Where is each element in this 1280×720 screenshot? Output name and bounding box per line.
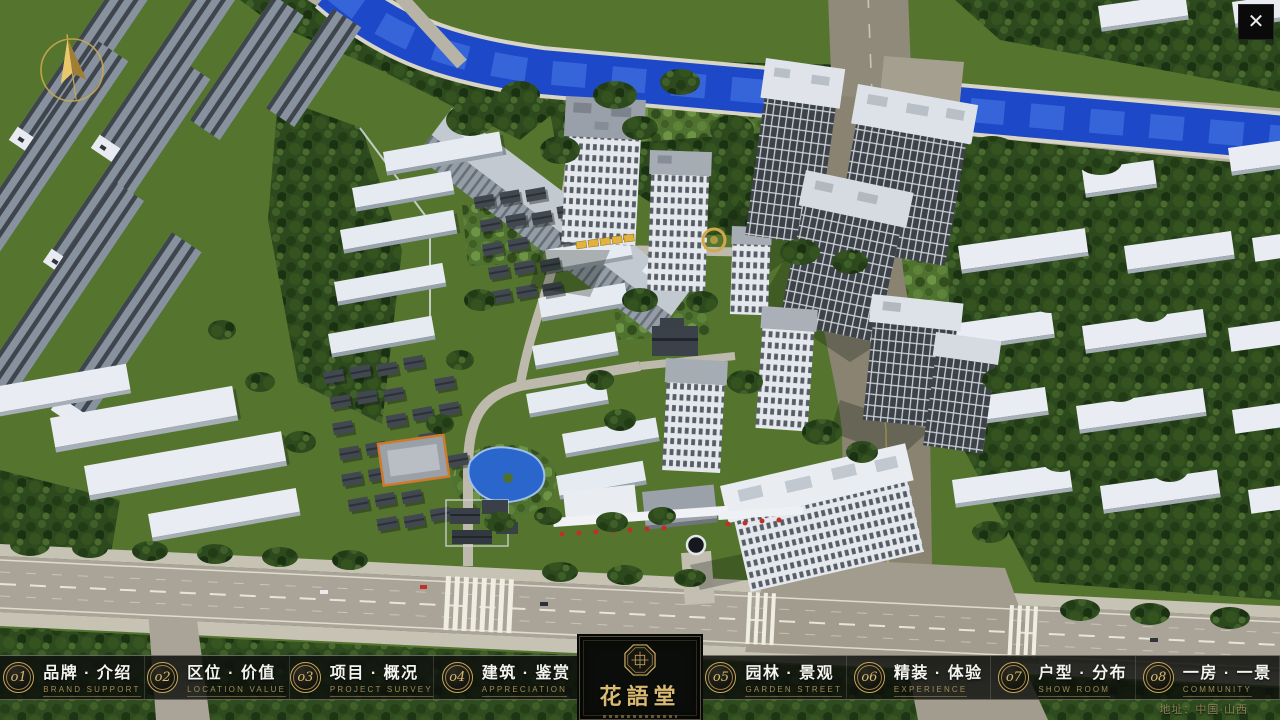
- nav-label: 区位 · 价值: [187, 659, 276, 683]
- nav-item-interior-experience[interactable]: o6 精装 · 体验EXPERIENCE: [847, 656, 992, 699]
- number-badge-icon: o4: [442, 662, 473, 693]
- nav-sublabel: PROJECT SURVEY: [330, 685, 433, 697]
- close-button[interactable]: ✕: [1238, 4, 1274, 40]
- nav-sublabel: LOCATION VALUE: [187, 685, 286, 697]
- nav-label: 园林 · 景观: [745, 659, 834, 683]
- nav-label: 品牌 · 介绍: [43, 659, 132, 683]
- nav-label: 精装 · 体验: [894, 659, 983, 683]
- number-badge-icon: o8: [1143, 662, 1174, 693]
- nav-item-location-value[interactable]: o2 区位 · 价值LOCATION VALUE: [145, 656, 290, 699]
- nav-sublabel: SHOW ROOM: [1038, 685, 1110, 697]
- masterplan-3d-view[interactable]: [0, 0, 1280, 720]
- number-badge-icon: o6: [854, 662, 885, 693]
- number-badge-icon: o1: [3, 662, 34, 693]
- nav-item-project-overview[interactable]: o3 项目 · 概况PROJECT SURVEY: [290, 656, 435, 699]
- nav-item-brand-intro[interactable]: o1 品牌 · 介绍BRAND SUPPORT: [0, 656, 145, 699]
- gate-logo-plaza: [687, 536, 705, 554]
- nav-item-room-view[interactable]: o8 一房 · 一景COMMUNITY: [1136, 656, 1280, 699]
- close-icon: ✕: [1248, 11, 1265, 33]
- nav-group-left: o1 品牌 · 介绍BRAND SUPPORT o2 区位 · 价值LOCATI…: [0, 656, 578, 699]
- nav-label: 建筑 · 鉴赏: [482, 659, 571, 683]
- logo-seal-icon: [624, 644, 656, 676]
- number-badge-icon: o2: [147, 662, 178, 693]
- presentation-window: ✕ o1 品牌 · 介绍BRAND SUPPORT o2 区位 · 价值LOCA…: [0, 0, 1280, 720]
- nav-group-right: o5 园林 · 景观GARDEN STREET o6 精装 · 体验EXPERI…: [702, 656, 1280, 699]
- logo-title: 花語堂: [599, 679, 680, 711]
- nav-sublabel: COMMUNITY: [1183, 685, 1252, 697]
- project-logo[interactable]: 花語堂: [579, 636, 701, 720]
- number-badge-icon: o7: [998, 662, 1029, 693]
- logo-subtitle-rule: [603, 715, 677, 718]
- number-badge-icon: o3: [290, 662, 321, 693]
- nav-sublabel: GARDEN STREET: [745, 685, 842, 697]
- nav-sublabel: APPRECIATION: [482, 685, 567, 697]
- nav-label: 项目 · 概况: [330, 659, 419, 683]
- nav-label: 户型 · 分布: [1038, 659, 1127, 683]
- nav-sublabel: BRAND SUPPORT: [43, 685, 140, 697]
- nav-item-garden-landscape[interactable]: o5 园林 · 景观GARDEN STREET: [702, 656, 847, 699]
- number-badge-icon: o5: [705, 662, 736, 693]
- project-address: 地址：中国·山西: [1159, 701, 1248, 717]
- nav-label: 一房 · 一景: [1183, 659, 1272, 683]
- nav-sublabel: EXPERIENCE: [894, 685, 968, 697]
- nav-item-unit-distribution[interactable]: o7 户型 · 分布SHOW ROOM: [991, 656, 1136, 699]
- nav-item-architecture[interactable]: o4 建筑 · 鉴赏APPRECIATION: [434, 656, 578, 699]
